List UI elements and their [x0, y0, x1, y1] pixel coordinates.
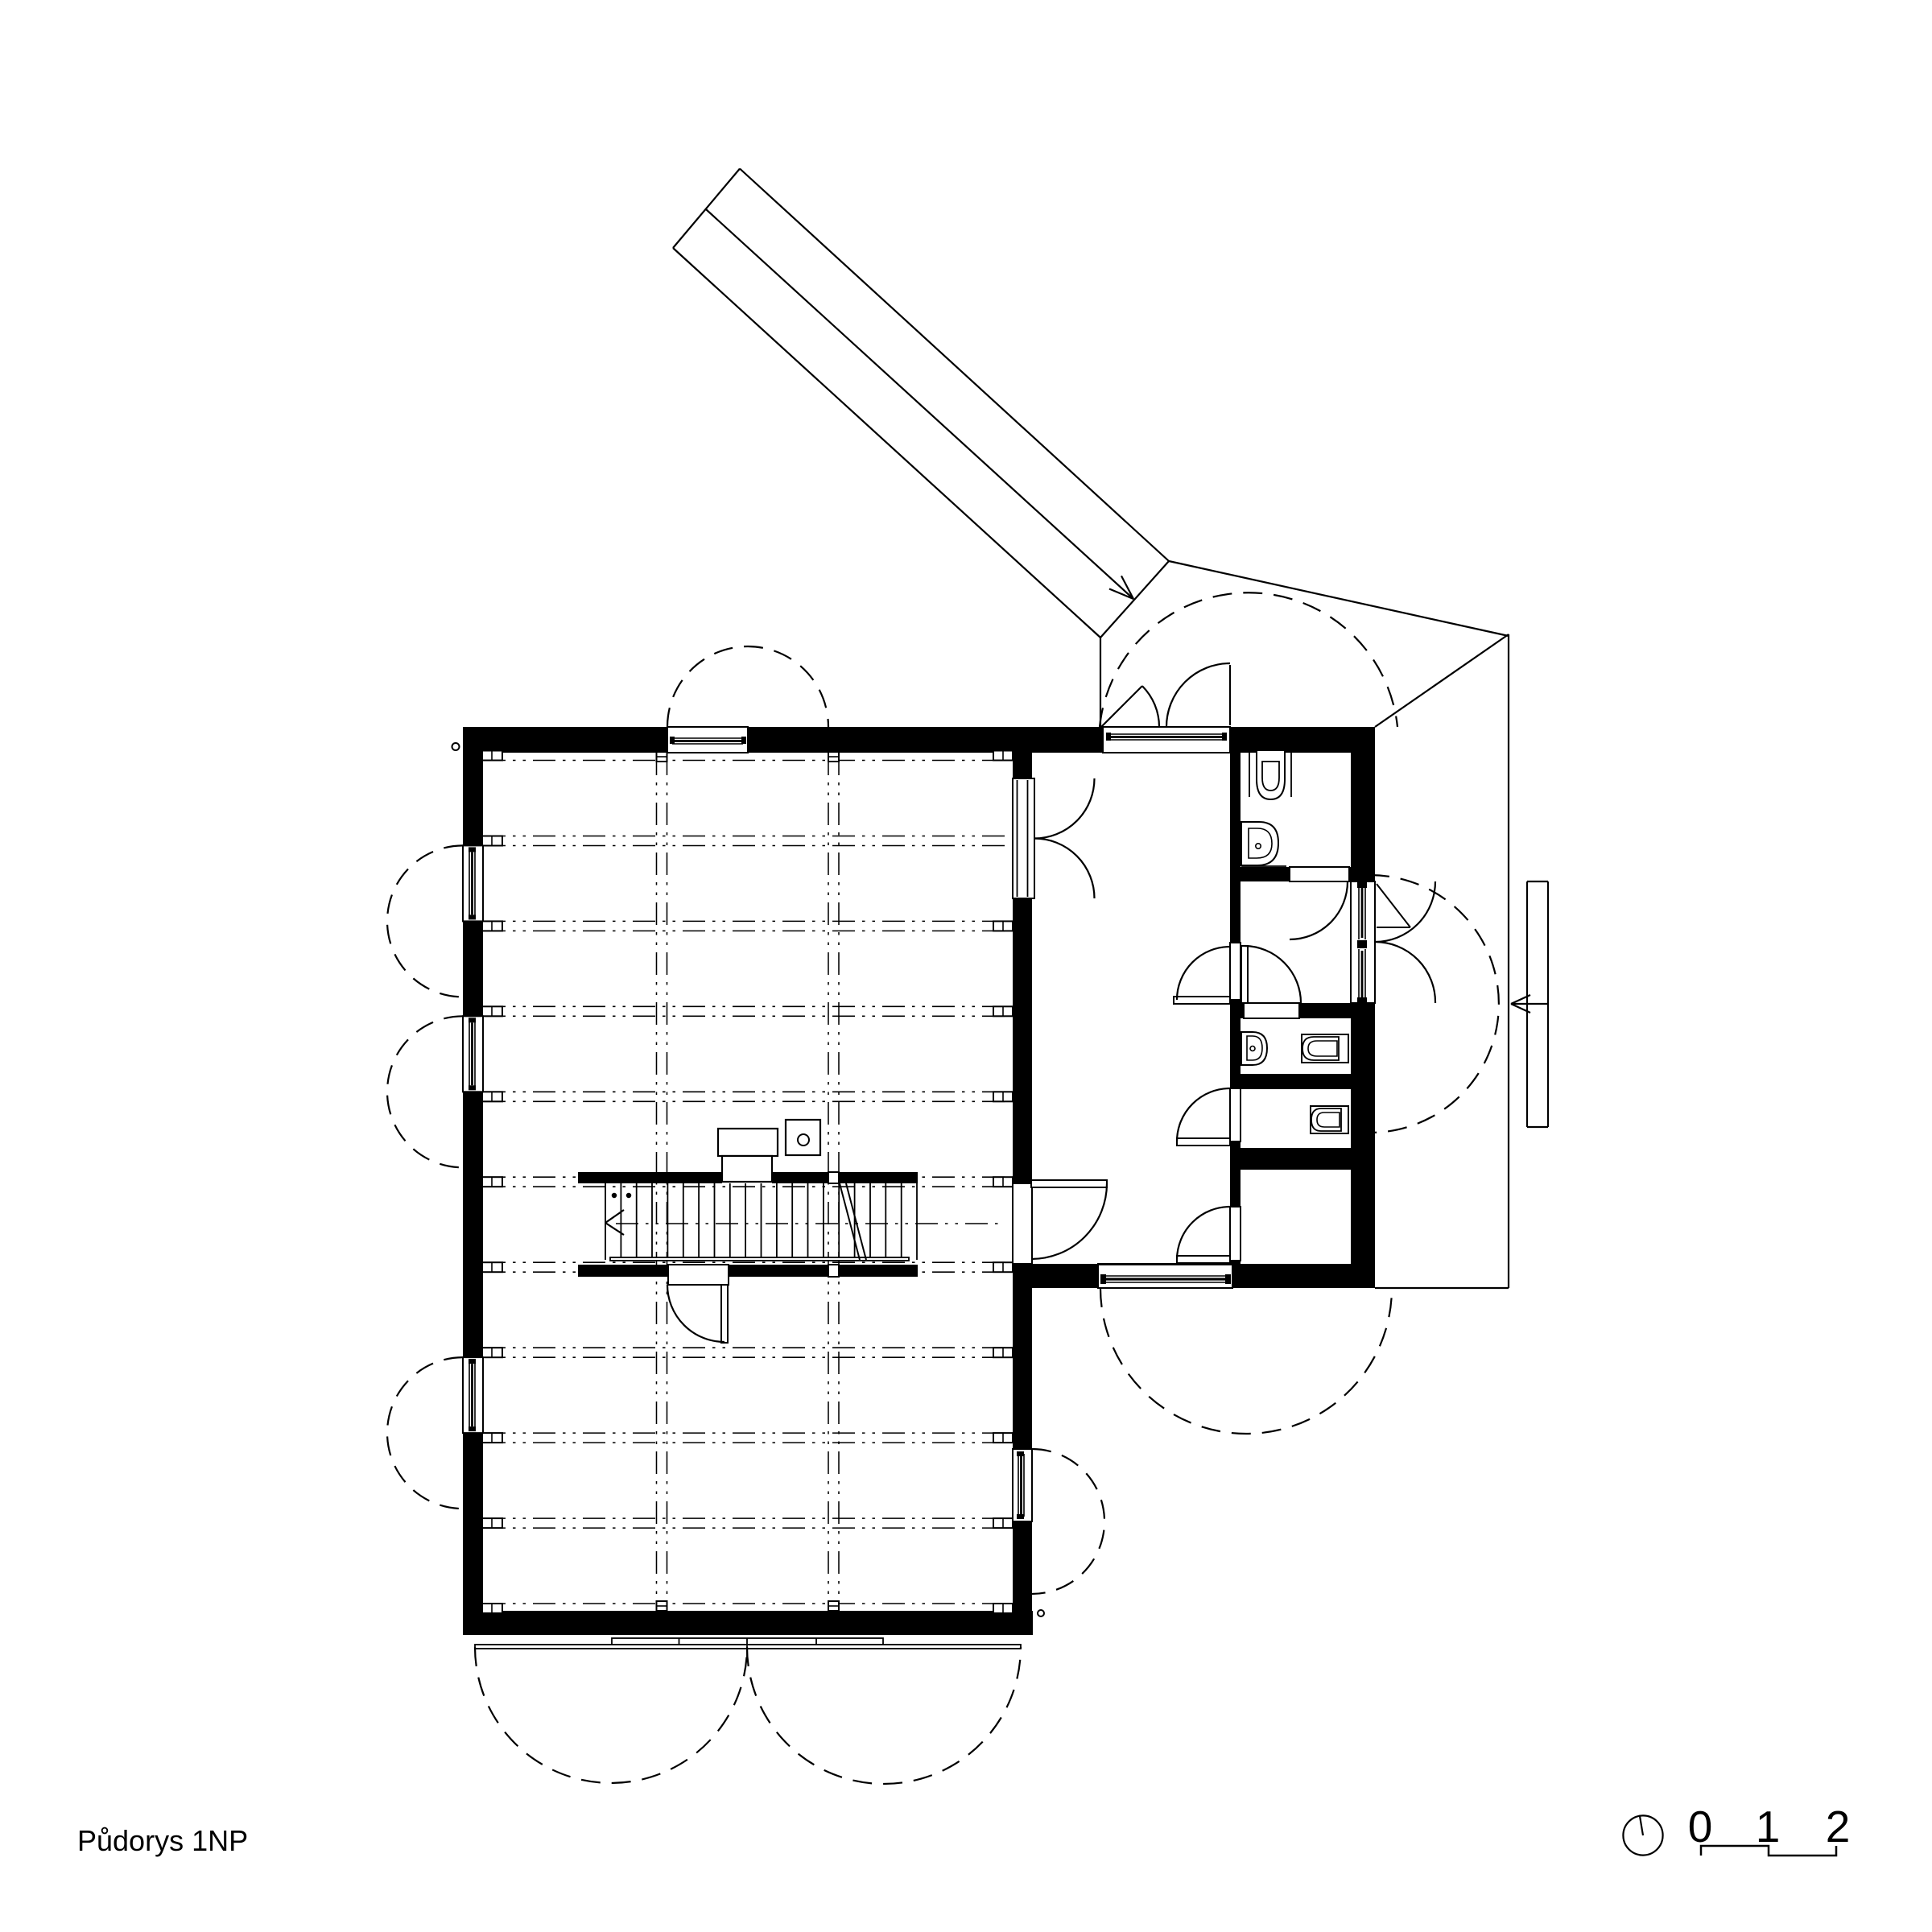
svg-text:2: 2	[1826, 1802, 1851, 1851]
svg-text:1: 1	[1756, 1802, 1781, 1851]
svg-text:0: 0	[1688, 1802, 1713, 1851]
svg-text:Půdorys 1NP: Půdorys 1NP	[77, 1824, 248, 1857]
